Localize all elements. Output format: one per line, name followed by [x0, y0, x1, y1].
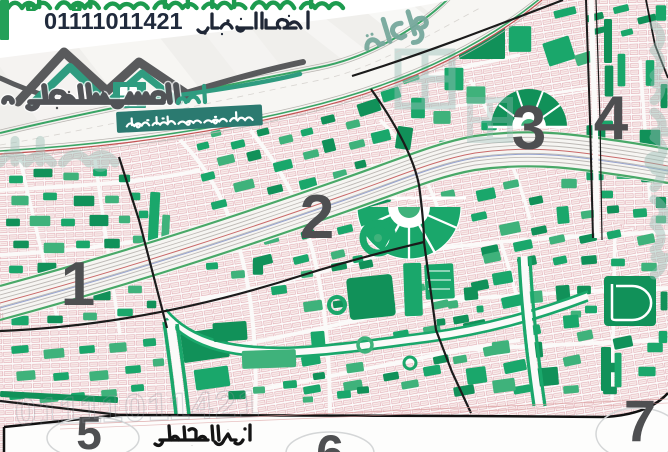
- svg-text:6: 6: [316, 425, 344, 452]
- svg-text:7: 7: [624, 389, 656, 452]
- svg-text:1: 1: [61, 250, 95, 319]
- svg-text:4: 4: [594, 84, 629, 153]
- svg-text:01111011421: 01111011421: [14, 383, 261, 434]
- svg-text:3: 3: [512, 94, 546, 163]
- svg-text:01111011421: 01111011421: [44, 8, 183, 34]
- svg-text:2: 2: [300, 183, 334, 252]
